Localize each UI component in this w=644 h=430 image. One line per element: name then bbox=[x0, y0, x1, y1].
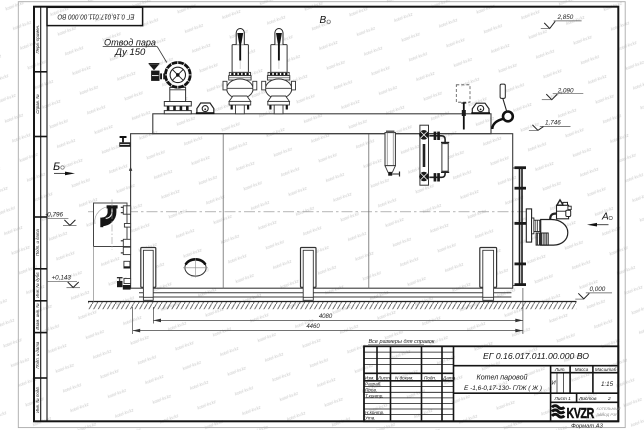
svg-text:Утв.: Утв. bbox=[365, 416, 375, 421]
svg-text:Масса: Масса bbox=[575, 367, 589, 372]
svg-text:N докум.: N докум. bbox=[395, 375, 414, 380]
svg-text:Все размеры для справок: Все размеры для справок bbox=[369, 339, 435, 345]
svg-text:Отвод пара: Отвод пара bbox=[104, 37, 156, 47]
svg-text:ЕГ 0.16.017.011.00.000 ВО: ЕГ 0.16.017.011.00.000 ВО bbox=[483, 352, 590, 361]
svg-text:Взам. инв. №: Взам. инв. № bbox=[35, 303, 40, 330]
svg-text:-0,796: -0,796 bbox=[45, 211, 63, 218]
svg-text:Разраб.: Разраб. bbox=[365, 382, 382, 387]
svg-text:Т.контр.: Т.контр. bbox=[365, 393, 384, 398]
svg-text:Подп. и дата: Подп. и дата bbox=[35, 229, 40, 257]
svg-text:Справ. №: Справ. № bbox=[35, 94, 40, 114]
svg-text:Формат А3: Формат А3 bbox=[571, 423, 603, 429]
svg-text:Е -1,6-0,17-130- ГЛЖ ( Ж ): Е -1,6-0,17-130- ГЛЖ ( Ж ) bbox=[464, 386, 542, 392]
svg-text:+0,143: +0,143 bbox=[52, 275, 72, 282]
svg-text:Подп. и дата: Подп. и дата bbox=[35, 341, 40, 369]
svg-text:КОТЕЛЬНЫЙ: КОТЕЛЬНЫЙ bbox=[597, 407, 621, 411]
svg-text:Б: Б bbox=[53, 161, 60, 173]
svg-text:KVZR: KVZR bbox=[567, 405, 595, 422]
svg-text:2: 2 bbox=[607, 396, 611, 402]
svg-text:ЕГ 0.16.017.011.00.000 ВО: ЕГ 0.16.017.011.00.000 ВО bbox=[57, 12, 134, 19]
svg-text:Ду 150: Ду 150 bbox=[114, 47, 145, 57]
svg-text:1:15: 1:15 bbox=[601, 381, 614, 388]
svg-text:2,090: 2,090 bbox=[557, 87, 574, 94]
svg-text:Изм.: Изм. bbox=[365, 375, 375, 380]
svg-text:В: В bbox=[320, 15, 327, 26]
svg-text:Перв. примен.: Перв. примен. bbox=[35, 25, 40, 54]
svg-text:А: А bbox=[601, 212, 609, 223]
svg-text:0,000: 0,000 bbox=[590, 286, 606, 293]
svg-text:Котел паровой: Котел паровой bbox=[477, 374, 528, 382]
svg-text:Инв. № дубл.: Инв. № дубл. bbox=[35, 271, 40, 297]
svg-text:Подп.: Подп. bbox=[424, 375, 436, 380]
svg-text:И: И bbox=[552, 380, 556, 386]
svg-text:Пров.: Пров. bbox=[365, 388, 377, 393]
svg-text:ЗАВОД РЗР: ЗАВОД РЗР bbox=[597, 413, 619, 417]
svg-text:1,746: 1,746 bbox=[545, 120, 561, 127]
svg-text:Масштаб: Масштаб bbox=[595, 367, 617, 372]
svg-text:Лист: Лист bbox=[377, 375, 390, 380]
svg-text:Инв. № подл.: Инв. № подл. bbox=[35, 386, 40, 413]
svg-text:2,850: 2,850 bbox=[557, 14, 574, 21]
svg-text:Н.контр.: Н.контр. bbox=[365, 410, 384, 415]
svg-text:Листов: Листов bbox=[578, 396, 597, 402]
svg-text:Дата: Дата bbox=[442, 375, 456, 380]
svg-text:Лист 1: Лист 1 bbox=[554, 396, 572, 402]
svg-text:Лит.: Лит. bbox=[554, 367, 566, 372]
svg-text:4460: 4460 bbox=[306, 324, 320, 330]
svg-text:4080: 4080 bbox=[319, 314, 333, 320]
